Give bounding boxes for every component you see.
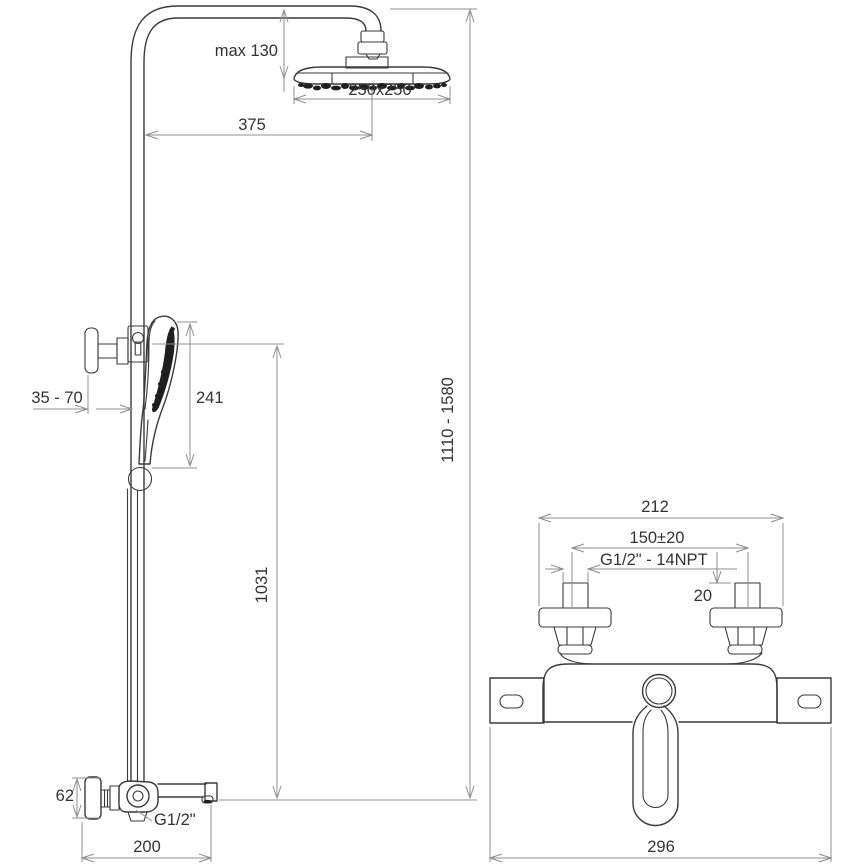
shower-system-technical-drawing: max 130 250x250 375 1110 - 1580 1031: [0, 0, 868, 868]
mixer-spout: [633, 706, 678, 826]
dim-label-head-offset: max 130: [215, 42, 278, 60]
dim-label-spout-body-height: 62: [56, 787, 74, 805]
dim-spout-body-height: 62: [56, 778, 101, 818]
bath-spout-assembly: [85, 777, 217, 821]
dim-label-bracket-offset: 35 - 70: [31, 389, 82, 407]
dim-bracket-offset: 35 - 70: [31, 375, 132, 414]
dim-riser-lower: 1031: [152, 344, 284, 798]
technical-drawing-page: max 130 250x250 375 1110 - 1580 1031: [0, 0, 868, 868]
dim-label-arm-reach: 375: [238, 116, 266, 134]
mixer-dimensions: 212 150±20 G1/2" - 14NPT 20 296: [490, 498, 831, 862]
mixer-handle-left: [490, 678, 544, 723]
dim-label-hand-shower-length: 241: [196, 389, 224, 407]
diverter-knob: [643, 675, 676, 708]
mixer-figure: [490, 583, 831, 826]
spout-bottom-thread: [128, 812, 147, 821]
dim-label-riser-height: 1110 - 1580: [439, 377, 457, 463]
hand-shower: [139, 316, 178, 464]
dim-label-spout-reach: 200: [133, 838, 161, 856]
wall-escutcheon: [85, 777, 101, 819]
overhead-shower-joint: [346, 31, 388, 68]
dim-label-flange-span: 212: [641, 498, 669, 516]
mixer-body: [543, 653, 777, 722]
dim-label-overall-width: 296: [647, 838, 675, 856]
dim-label-inlet-spacing: 150±20: [630, 529, 685, 547]
dim-overall-width: 296: [490, 727, 831, 862]
mixer-inlet-right: [710, 583, 782, 654]
dim-arm-reach: 375: [146, 89, 372, 141]
spout-valve-knob: [127, 785, 149, 807]
dim-label-head-size: 250x250: [348, 81, 411, 99]
dim-label-inlet-protrusion: 20: [694, 587, 712, 605]
dim-label-riser-lower: 1031: [253, 567, 271, 604]
tub-spout: [158, 783, 217, 803]
shower-column-dimensions: max 130 250x250 375 1110 - 1580 1031: [31, 9, 477, 862]
mixer-inlet-left: [539, 583, 611, 654]
hand-shower-nozzles: [152, 326, 175, 412]
wall-bracket: [85, 326, 148, 373]
dim-head-offset: max 130: [215, 10, 284, 92]
shower-column-figure: [85, 6, 450, 821]
dim-label-spout-thread: G1/2": [154, 811, 196, 829]
dim-inlet-thread: G1/2" - 14NPT: [545, 551, 737, 582]
mixer-handle-right: [777, 678, 831, 723]
dim-label-inlet-thread: G1/2" - 14NPT: [600, 551, 708, 569]
